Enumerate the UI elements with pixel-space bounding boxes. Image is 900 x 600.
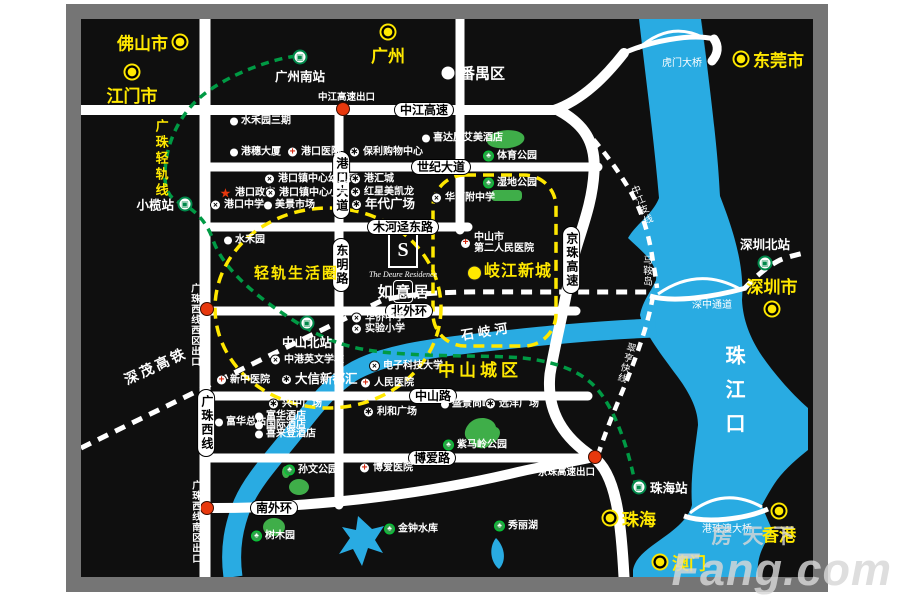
dot-icon <box>230 148 238 156</box>
city-marker <box>771 503 788 520</box>
poi-label: 港口医院 <box>301 147 341 158</box>
park-icon: ♣ <box>483 151 494 162</box>
park-icon: ♣ <box>443 440 454 451</box>
poi-label: 新中医院 <box>230 375 270 386</box>
poi-hosp: +博爱医院 <box>359 463 413 474</box>
mall-icon: ∗ <box>268 399 279 410</box>
poi-label: 中山市 第二人民医院 <box>474 232 534 254</box>
poi-school: ×港口镇中心幼儿园 <box>264 174 358 185</box>
city-marker <box>652 554 669 571</box>
poi-label: 电子科技大学 <box>383 361 443 372</box>
poi-label: 远洋广场 <box>499 399 539 410</box>
exit-dot <box>200 302 214 316</box>
city-label: 佛山市 <box>117 30 168 55</box>
exit-dot <box>200 501 214 515</box>
train-station-icon: ▣ <box>632 480 647 495</box>
star-icon: ★ <box>219 187 232 200</box>
poi-park: ♣秀丽湖 <box>494 521 538 532</box>
poi-dot: 喜来登酒店 <box>255 429 316 440</box>
map-text-label: 岐江新城 <box>484 264 552 281</box>
school-icon: × <box>351 324 362 335</box>
poi-dot: 水禾园三期 <box>230 116 291 127</box>
road-label: 港口大道 <box>332 151 350 219</box>
poi-label: 年代广场 <box>365 198 415 212</box>
station-label: 广州南站 <box>275 66 325 85</box>
city-label: 珠海 <box>622 506 656 531</box>
poi-label: 港口中学 <box>224 200 264 211</box>
exit-dot <box>588 450 602 464</box>
poi-school: ×港口中学 <box>210 200 264 211</box>
poi-dot: 水禾园 <box>224 235 265 246</box>
train-station-icon: ▣ <box>758 256 773 271</box>
poi-mall: ∗兴中广场 <box>268 399 322 410</box>
city-marker <box>764 301 781 318</box>
logo-chinese-name: 如 意 居 <box>360 280 446 303</box>
school-icon: × <box>351 313 362 324</box>
train-station-icon: ▣ <box>293 50 308 65</box>
dot-icon <box>255 430 263 438</box>
exit-label: 京珠高速出口 <box>538 464 595 478</box>
park-icon: ♣ <box>284 465 295 476</box>
road-label: 中江高速 <box>394 102 454 118</box>
road-label: 木河迳东路 <box>367 219 439 235</box>
map-text-label: 深中通道 <box>692 301 732 312</box>
dot-icon <box>230 117 238 125</box>
dot-icon <box>224 236 232 244</box>
poi-park: ♣金钟水库 <box>384 524 438 535</box>
logo-cn-char: 如 <box>377 281 392 302</box>
school-icon: × <box>369 361 380 372</box>
logo-english-name: The Deure Residence <box>360 270 446 279</box>
poi-park: ♣树木园 <box>251 531 295 542</box>
map-text-label: 马鞍岛 <box>641 255 651 287</box>
poi-label: 中港英文学校 <box>284 355 344 366</box>
map-text-label: 广珠轻轨线 <box>154 119 168 199</box>
city-marker <box>602 510 619 527</box>
ydot-icon <box>467 266 482 281</box>
dot-icon <box>264 201 272 209</box>
city-marker <box>172 34 189 51</box>
poi-mall: ∗保利购物中心 <box>349 147 423 158</box>
poi-park: ♣湿地公园 <box>483 178 537 189</box>
poi-school: ×港口镇中心小学 <box>265 188 349 199</box>
mall-icon: ∗ <box>363 407 374 418</box>
poi-school: ×华侨中学 <box>351 313 405 324</box>
poi-label: 体育公园 <box>497 151 537 162</box>
logo-cn-char: 居 <box>414 281 429 302</box>
poi-label: 保利购物中心 <box>363 147 423 158</box>
city-label: 深圳市 <box>747 273 798 298</box>
poi-label: 实验小学 <box>365 324 405 335</box>
exit-label: 广珠西线西区出口 <box>187 283 201 367</box>
school-icon: × <box>210 200 221 211</box>
dot-icon <box>215 418 223 426</box>
poi-mall: ∗红星美凯龙 <box>350 187 414 198</box>
exit-label: 中江高速出口 <box>318 89 375 103</box>
poi-label: 华侨中学 <box>365 313 405 324</box>
hosp-icon: + <box>360 378 371 389</box>
poi-school: ×电子科技大学 <box>369 361 443 372</box>
poi-label: 孙文公园 <box>298 465 338 476</box>
poi-label: 喜来登酒店 <box>266 429 316 440</box>
poi-label: 金钟水库 <box>398 524 438 535</box>
road-label: 博爱路 <box>408 450 456 466</box>
poi-label: 港汇城 <box>364 174 394 185</box>
school-icon: × <box>270 355 281 366</box>
park-icon: ♣ <box>384 524 395 535</box>
city-label: 澳门 <box>672 550 706 575</box>
poi-label: 港穗大厦 <box>241 147 281 158</box>
poi-label: 大信新都汇 <box>295 373 358 387</box>
map-text-label: 虎门大桥 <box>662 59 702 70</box>
station-label: 深圳北站 <box>740 234 790 253</box>
hosp-icon: + <box>287 147 298 158</box>
poi-park: ♣体育公园 <box>483 151 537 162</box>
park-icon: ♣ <box>483 178 494 189</box>
poi-label: 秀丽湖 <box>508 521 538 532</box>
poi-label: 人民医院 <box>374 378 414 389</box>
poi-label: 兴中广场 <box>282 399 322 410</box>
poi-label: 港口镇中心小学 <box>279 188 349 199</box>
station-label: 中山北站 <box>282 332 332 351</box>
poi-dot: 港穗大厦 <box>230 147 281 158</box>
poi-hosp: +港口医院 <box>287 147 341 158</box>
poi-label: 华师附中学 <box>445 193 495 204</box>
city-marker <box>380 24 397 41</box>
poi-school: ×实验小学 <box>351 324 405 335</box>
logo-cn-char-boxed: 意 <box>393 280 412 303</box>
poi-mall: ∗远洋广场 <box>485 399 539 410</box>
road-label: 广珠西线 <box>197 389 215 457</box>
poi-hosp: +新中医院 <box>216 375 270 386</box>
poi-mall: ∗大信新都汇 <box>281 373 358 387</box>
poi-school: ×中港英文学校 <box>270 355 344 366</box>
mall-icon: ∗ <box>349 147 360 158</box>
road-label: 世纪大道 <box>411 159 471 175</box>
logo-monogram: S <box>388 232 418 268</box>
poi-label: 利和广场 <box>377 407 417 418</box>
poi-label: 树木园 <box>265 531 295 542</box>
poi-park: ♣孙文公园 <box>284 465 338 476</box>
city-marker <box>124 64 141 81</box>
poi-label: 博爱医院 <box>373 463 413 474</box>
park-icon: ♣ <box>494 521 505 532</box>
road-label: 南外环 <box>250 500 298 516</box>
train-station-icon: ▣ <box>300 316 315 331</box>
city-marker <box>733 51 750 68</box>
poi-label: 红星美凯龙 <box>364 187 414 198</box>
poi-hosp: +人民医院 <box>360 378 414 389</box>
poi-mall: ∗利和广场 <box>363 407 417 418</box>
city-label: 江门市 <box>107 82 158 107</box>
poi-label: 喜达屋艾美酒店 <box>433 133 503 144</box>
poi-label: 紫马岭公园 <box>457 440 507 451</box>
school-icon: × <box>431 193 442 204</box>
project-logo: S The Deure Residence 如 意 居 <box>360 232 446 303</box>
school-icon: × <box>264 174 275 185</box>
map-text-label: 港珠澳大桥 <box>702 525 752 536</box>
mall-icon: ∗ <box>350 187 361 198</box>
city-label: 东莞市 <box>753 47 804 72</box>
poi-label: 美景市场 <box>275 200 315 211</box>
mall-icon: ∗ <box>485 399 496 410</box>
poi-label: 湿地公园 <box>497 178 537 189</box>
logo-monogram-letter: S <box>397 239 408 262</box>
city-marker <box>442 67 455 80</box>
station-label: 珠海站 <box>650 478 688 497</box>
hosp-icon: + <box>460 238 471 249</box>
mall-icon: ∗ <box>281 375 292 386</box>
park-icon: ♣ <box>251 531 262 542</box>
train-station-icon: ▣ <box>178 197 193 212</box>
map-text-label: 珠江口 <box>722 345 743 447</box>
map-text-label: 轻轨生活圈 <box>254 266 339 282</box>
hosp-icon: + <box>359 463 370 474</box>
city-label: 香港 <box>762 521 796 546</box>
dot-icon <box>422 134 430 142</box>
poi-mall: ∗年代广场 <box>351 198 415 212</box>
poi-hosp: +中山市 第二人民医院 <box>460 232 534 254</box>
location-map-page: S The Deure Residence 如 意 居 中江高速世纪大道木河迳东… <box>0 0 900 600</box>
poi-school: ×华师附中学 <box>431 193 495 204</box>
road-label: 京珠高速 <box>562 226 580 294</box>
map-text-label: 中山城区 <box>438 362 522 380</box>
poi-dot: 美景市场 <box>264 200 315 211</box>
exit-label: 广珠西线南区出口 <box>188 480 202 564</box>
city-label: 番禺区 <box>460 63 505 84</box>
poi-park: ♣紫马岭公园 <box>443 440 507 451</box>
poi-label: 港口镇中心幼儿园 <box>278 174 358 185</box>
poi-dot: 喜达屋艾美酒店 <box>422 133 503 144</box>
poi-ydot <box>467 266 482 281</box>
poi-label: 水禾园三期 <box>241 116 291 127</box>
exit-dot <box>336 102 350 116</box>
dot-icon <box>441 400 449 408</box>
city-label: 广州 <box>371 42 405 67</box>
hosp-icon: + <box>216 375 227 386</box>
school-icon: × <box>265 188 276 199</box>
mall-icon: ∗ <box>350 174 361 185</box>
mall-icon: ∗ <box>351 200 362 211</box>
poi-label: 水禾园 <box>235 235 265 246</box>
poi-mall: ∗港汇城 <box>350 174 394 185</box>
